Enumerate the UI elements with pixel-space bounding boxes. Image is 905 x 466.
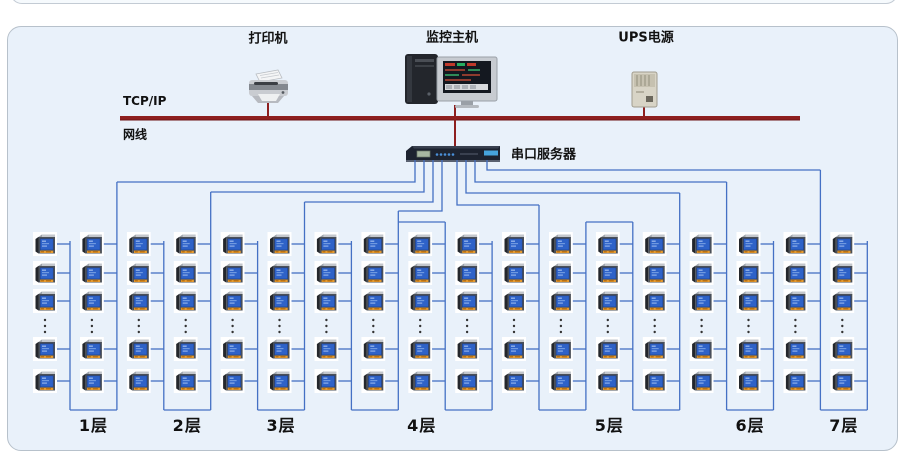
- power-meter-icon: [830, 232, 854, 256]
- power-meter-icon: [80, 232, 104, 256]
- power-meter-icon: [33, 261, 57, 285]
- power-meter-icon: [221, 261, 245, 285]
- power-meter-icon: [596, 369, 620, 393]
- power-meter-icon: [830, 289, 854, 313]
- power-meter-icon: [268, 369, 292, 393]
- power-meter-icon: [502, 232, 526, 256]
- printer-label: 打印机: [248, 28, 287, 47]
- power-meter-icon: [549, 369, 573, 393]
- power-meter-icon: [596, 337, 620, 361]
- power-meter-icon: [80, 369, 104, 393]
- power-meter-icon: [455, 261, 479, 285]
- netcable-label: 网线: [123, 126, 147, 143]
- power-meter-icon: [455, 232, 479, 256]
- power-meter-icon: [455, 337, 479, 361]
- power-meter-icon: [737, 232, 761, 256]
- power-meter-icon: [314, 337, 338, 361]
- power-meter-icon: [783, 232, 807, 256]
- power-meter-icon: [268, 289, 292, 313]
- printer-icon: [249, 70, 288, 103]
- power-meter-icon: [33, 289, 57, 313]
- power-meter-icon: [268, 261, 292, 285]
- floor-label-3: 3层: [266, 412, 295, 436]
- power-meter-icon: [502, 289, 526, 313]
- power-meter-icon: [33, 369, 57, 393]
- power-meter-icon: [221, 232, 245, 256]
- serial-server-label: 串口服务器: [511, 144, 576, 163]
- tcpip-backbone: [120, 103, 800, 146]
- floor-label-1: 1层: [79, 412, 108, 436]
- power-meter-icon: [408, 289, 432, 313]
- power-meter-icon: [783, 337, 807, 361]
- power-meter-icon: [80, 289, 104, 313]
- power-meter-icon: [549, 261, 573, 285]
- power-meter-icon: [737, 369, 761, 393]
- power-meter-icon: [33, 232, 57, 256]
- power-meter-icon: [830, 369, 854, 393]
- power-meter-icon: [737, 289, 761, 313]
- power-meter-icon: [268, 232, 292, 256]
- power-meter-icon: [737, 261, 761, 285]
- tcpip-label: TCP/IP: [123, 94, 166, 108]
- power-meter-icon: [830, 337, 854, 361]
- power-meter-icon: [127, 369, 151, 393]
- power-meter-icon: [502, 369, 526, 393]
- floor-label-7: 7层: [829, 412, 858, 436]
- power-meter-icon: [783, 289, 807, 313]
- power-meter-icon: [174, 261, 198, 285]
- power-meter-icon: [174, 369, 198, 393]
- floor-label-4: 4层: [407, 412, 436, 436]
- power-meter-icon: [408, 232, 432, 256]
- power-meter-icon: [830, 261, 854, 285]
- power-meter-icon: [127, 337, 151, 361]
- power-meter-icon: [127, 232, 151, 256]
- ups-icon: [632, 72, 657, 107]
- monitor-host-icon: [405, 54, 497, 108]
- power-meter-icon: [643, 337, 667, 361]
- power-meter-icon: [314, 369, 338, 393]
- power-meter-icon: [221, 289, 245, 313]
- host-label: 监控主机: [426, 27, 478, 46]
- power-meter-icon: [690, 369, 714, 393]
- power-meter-icon: [127, 261, 151, 285]
- power-meter-icon: [690, 232, 714, 256]
- power-meter-icon: [408, 369, 432, 393]
- power-meter-icon: [221, 369, 245, 393]
- power-meter-icon: [643, 289, 667, 313]
- power-meter-icon: [33, 337, 57, 361]
- power-meter-icon: [361, 369, 385, 393]
- power-meter-icon: [643, 261, 667, 285]
- topology-diagram: [0, 0, 905, 466]
- power-meter-icon: [596, 289, 620, 313]
- diagram-stage: 打印机 监控主机 UPS电源 TCP/IP 网线 串口服务器 1层2层3层4层5…: [0, 0, 905, 466]
- ups-label: UPS电源: [618, 27, 673, 46]
- power-meter-icon: [80, 337, 104, 361]
- power-meter-icon: [502, 261, 526, 285]
- floor-label-6: 6层: [735, 412, 764, 436]
- power-meter-icon: [549, 337, 573, 361]
- power-meter-icon: [174, 232, 198, 256]
- power-meter-icon: [174, 337, 198, 361]
- floor-label-2: 2层: [173, 412, 202, 436]
- power-meter-icon: [783, 261, 807, 285]
- power-meter-icon: [268, 337, 292, 361]
- power-meter-icon: [549, 289, 573, 313]
- power-meter-icon: [80, 261, 104, 285]
- power-meter-icon: [596, 232, 620, 256]
- power-meter-icon: [643, 232, 667, 256]
- power-meter-icon: [502, 337, 526, 361]
- power-meter-icon: [314, 232, 338, 256]
- power-meter-icon: [361, 337, 385, 361]
- meter-grid: [33, 160, 867, 410]
- floor-label-5: 5层: [595, 412, 624, 436]
- power-meter-icon: [361, 261, 385, 285]
- power-meter-icon: [643, 369, 667, 393]
- power-meter-icon: [690, 261, 714, 285]
- power-meter-icon: [737, 337, 761, 361]
- power-meter-icon: [455, 289, 479, 313]
- power-meter-icon: [314, 261, 338, 285]
- power-meter-icon: [314, 289, 338, 313]
- power-meter-icon: [690, 289, 714, 313]
- power-meter-icon: [127, 289, 151, 313]
- power-meter-icon: [361, 232, 385, 256]
- power-meter-icon: [361, 289, 385, 313]
- power-meter-icon: [783, 369, 807, 393]
- power-meter-icon: [408, 337, 432, 361]
- power-meter-icon: [174, 289, 198, 313]
- power-meter-icon: [221, 337, 245, 361]
- power-meter-icon: [549, 232, 573, 256]
- power-meter-icon: [596, 261, 620, 285]
- power-meter-icon: [455, 369, 479, 393]
- power-meter-icon: [690, 337, 714, 361]
- power-meter-icon: [408, 261, 432, 285]
- serial-server-icon: [406, 146, 500, 162]
